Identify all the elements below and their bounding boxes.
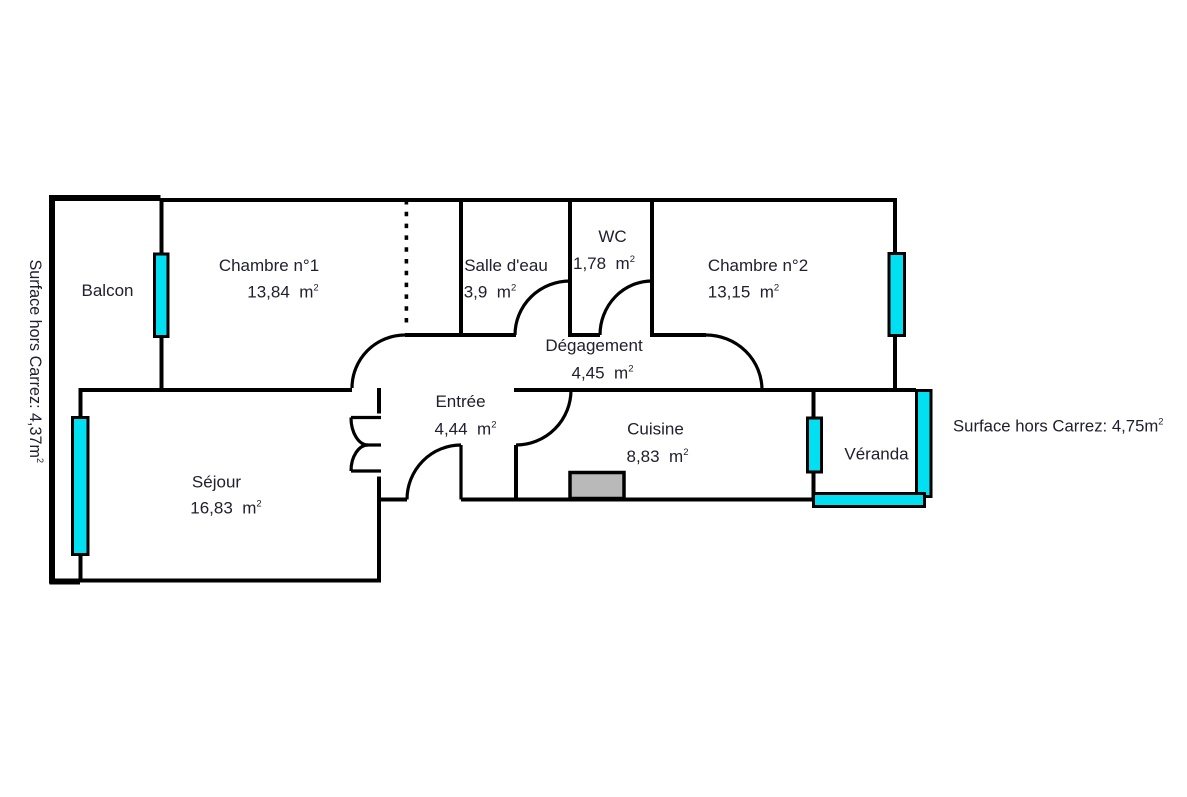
svg-text:16,83 m2: 16,83 m2: [190, 499, 261, 518]
svg-text:1,78 m2: 1,78 m2: [573, 254, 635, 273]
svg-text:4,44 m2: 4,44 m2: [435, 420, 497, 439]
svg-text:13,15 m2: 13,15 m2: [708, 283, 779, 302]
svg-text:Balcon: Balcon: [82, 281, 134, 300]
svg-text:Surface hors Carrez: 4,75m2: Surface hors Carrez: 4,75m2: [953, 417, 1164, 436]
svg-text:Chambre n°1: Chambre n°1: [219, 256, 319, 275]
svg-text:Chambre n°2: Chambre n°2: [708, 256, 808, 275]
svg-text:Salle d'eau: Salle d'eau: [464, 256, 548, 275]
svg-text:3,9 m2: 3,9 m2: [464, 283, 517, 302]
svg-text:Dégagement: Dégagement: [545, 336, 643, 355]
svg-text:4,45 m2: 4,45 m2: [572, 364, 634, 383]
svg-text:13,84 m2: 13,84 m2: [247, 283, 318, 302]
svg-text:Cuisine: Cuisine: [627, 420, 684, 439]
svg-text:Véranda: Véranda: [844, 445, 909, 464]
svg-text:WC: WC: [598, 227, 626, 246]
svg-text:8,83 m2: 8,83 m2: [627, 447, 689, 466]
svg-text:Entrée: Entrée: [435, 392, 485, 411]
svg-text:Séjour: Séjour: [192, 473, 241, 492]
svg-text:Surface hors Carrez: 4,37m2: Surface hors Carrez: 4,37m2: [26, 260, 45, 464]
